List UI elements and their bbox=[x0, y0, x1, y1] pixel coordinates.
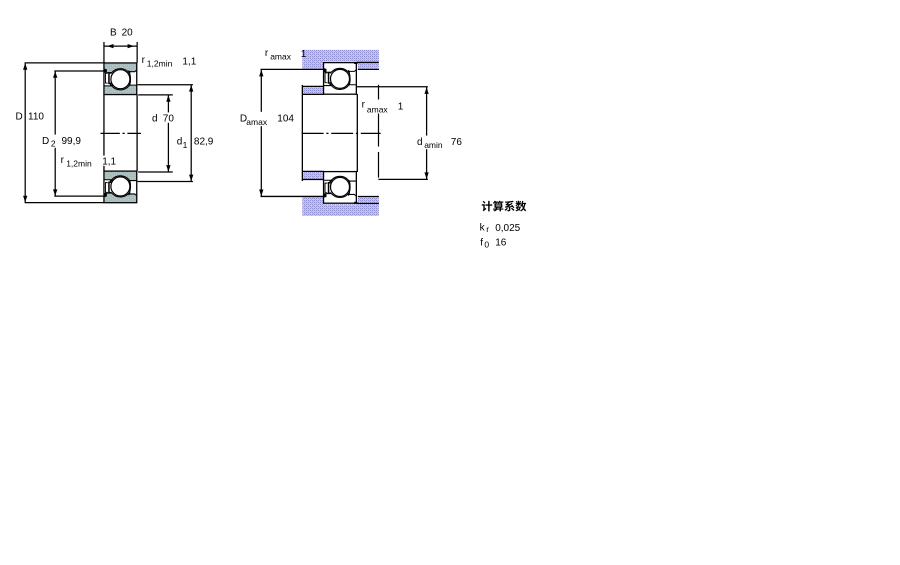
svg-text:amax: amax bbox=[246, 117, 268, 127]
svg-text:82,9: 82,9 bbox=[194, 137, 214, 148]
svg-text:amax: amax bbox=[270, 52, 292, 62]
svg-text:r: r bbox=[486, 224, 489, 234]
svg-text:110: 110 bbox=[28, 112, 44, 123]
svg-text:104: 104 bbox=[277, 113, 294, 124]
svg-text:1,2min: 1,2min bbox=[66, 159, 92, 169]
svg-text:70: 70 bbox=[163, 113, 175, 124]
svg-text:1: 1 bbox=[301, 49, 307, 60]
svg-text:D: D bbox=[16, 112, 23, 123]
svg-text:D: D bbox=[42, 136, 49, 147]
svg-text:1,2min: 1,2min bbox=[147, 59, 173, 69]
svg-text:0,025: 0,025 bbox=[495, 223, 520, 234]
svg-text:1: 1 bbox=[398, 102, 404, 113]
svg-text:d: d bbox=[177, 137, 183, 148]
svg-text:B: B bbox=[110, 28, 117, 39]
svg-text:1,1: 1,1 bbox=[102, 156, 116, 167]
svg-text:1: 1 bbox=[183, 140, 188, 150]
svg-text:99,9: 99,9 bbox=[62, 136, 82, 147]
svg-text:76: 76 bbox=[451, 137, 463, 148]
svg-text:amax: amax bbox=[367, 104, 389, 114]
svg-text:16: 16 bbox=[495, 238, 507, 249]
svg-text:2: 2 bbox=[51, 139, 56, 149]
svg-text:1,1: 1,1 bbox=[182, 57, 196, 68]
svg-text:d: d bbox=[152, 113, 158, 124]
svg-text:0: 0 bbox=[484, 240, 489, 250]
svg-text:f: f bbox=[480, 238, 483, 249]
svg-text:d: d bbox=[417, 137, 423, 148]
svg-text:20: 20 bbox=[122, 28, 134, 39]
svg-text:amin: amin bbox=[424, 140, 443, 150]
